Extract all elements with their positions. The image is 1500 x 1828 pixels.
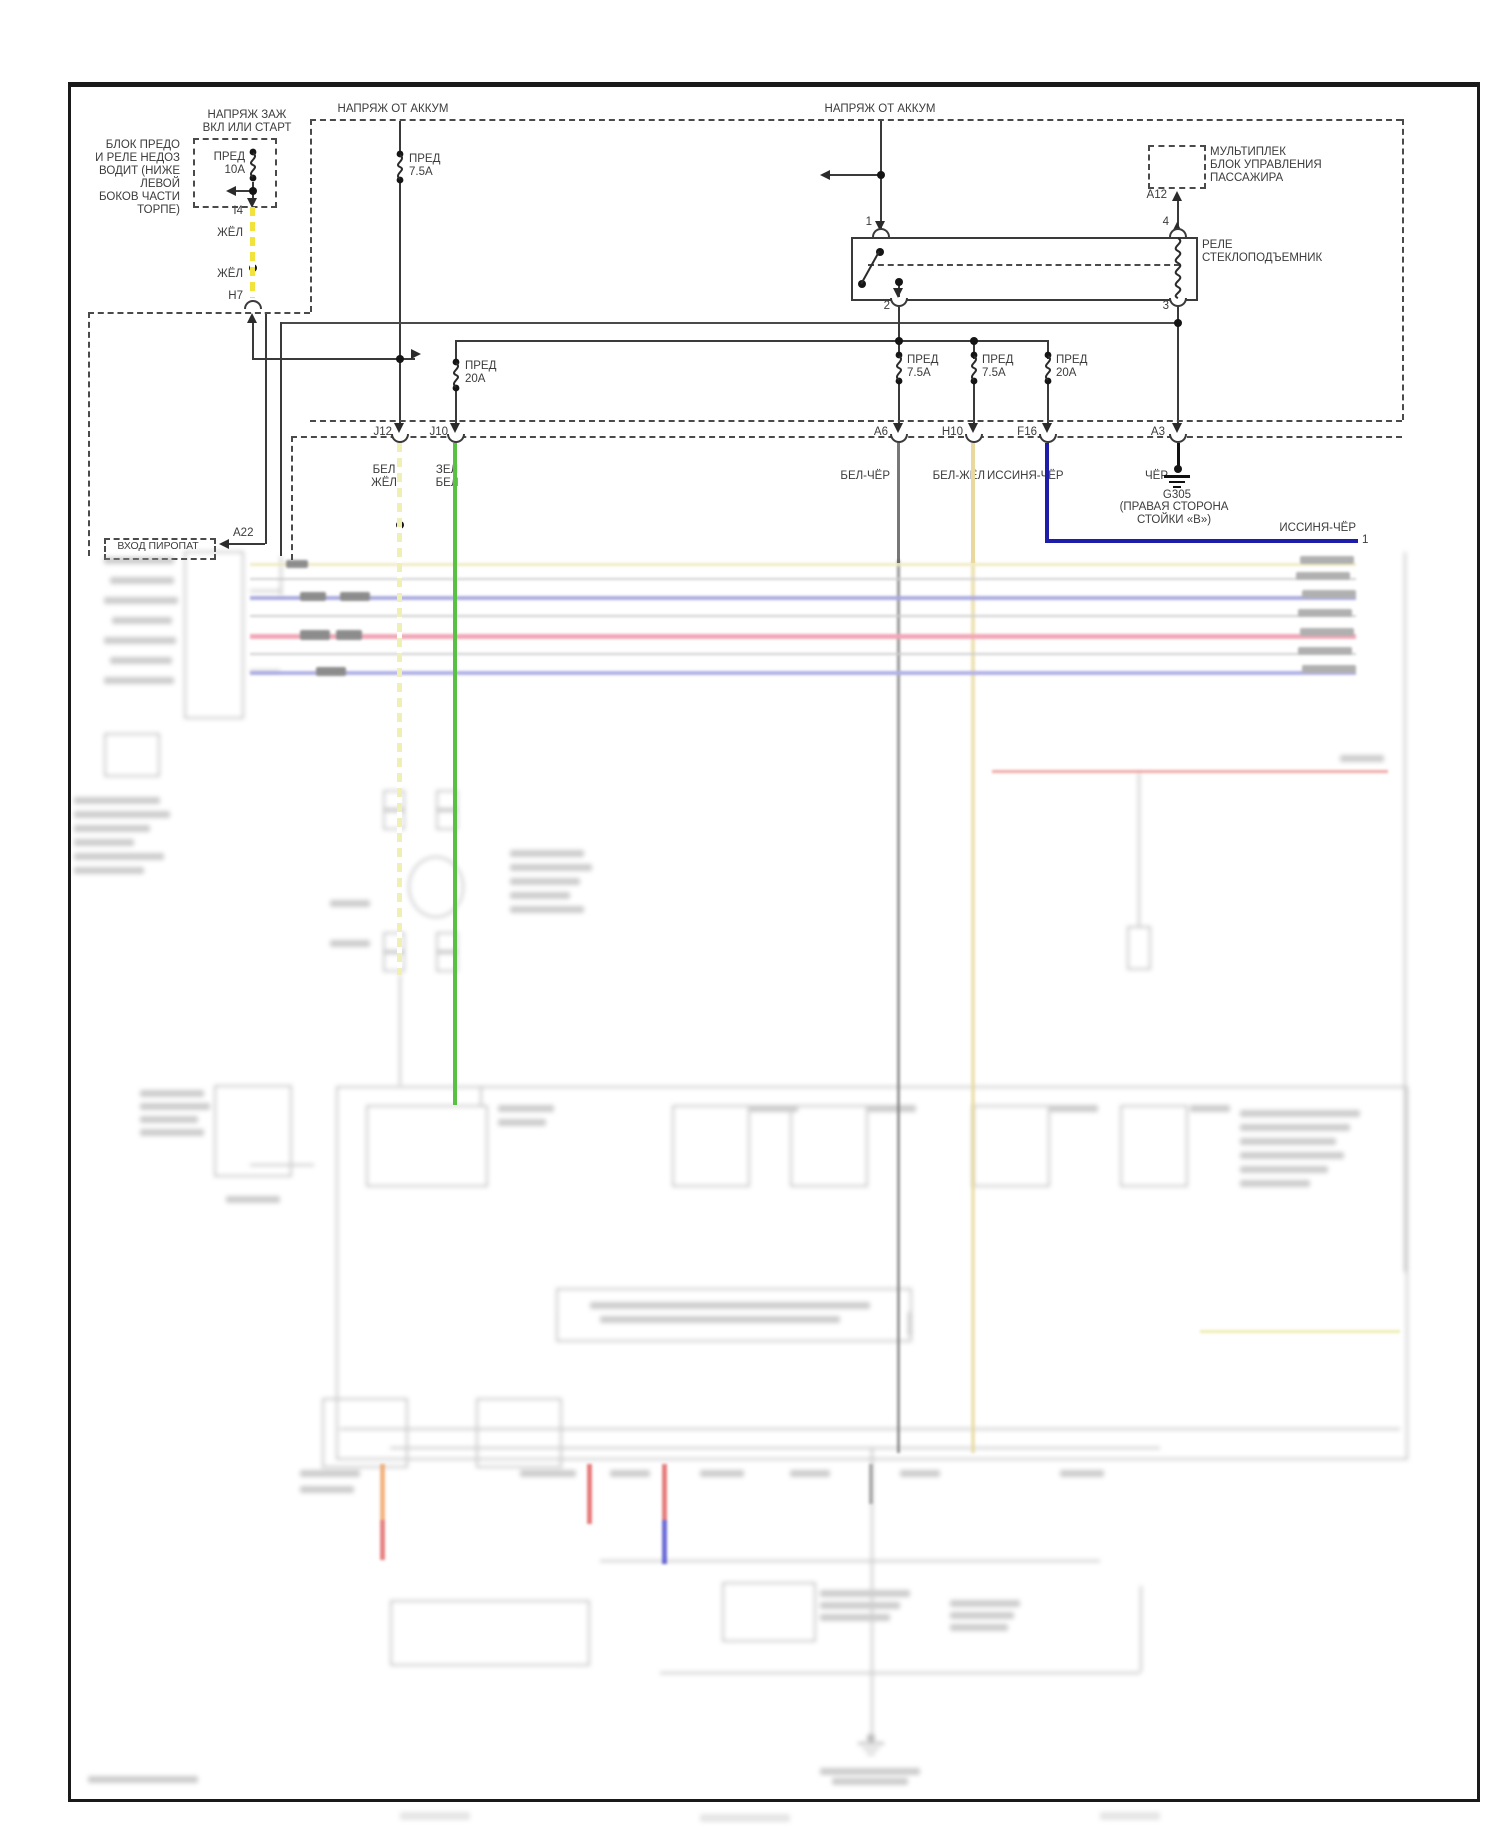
wire-line bbox=[280, 322, 282, 556]
junction-dot bbox=[895, 337, 903, 345]
wire-white-yellow-faded bbox=[971, 560, 975, 1453]
ghost-colored-wire bbox=[869, 1464, 873, 1504]
arrow-down-icon bbox=[1172, 423, 1182, 433]
wire-yellow-dashed bbox=[250, 207, 255, 298]
bus-line bbox=[250, 596, 1356, 600]
arrow-up-icon bbox=[247, 313, 257, 323]
fuse-symbol bbox=[1040, 351, 1056, 385]
ghost-colored-wire bbox=[662, 1464, 667, 1520]
dashed-boundary bbox=[291, 436, 293, 560]
ghost-colored-wire bbox=[662, 1520, 667, 1564]
bus-connector-blob bbox=[300, 630, 330, 640]
fuse-symbol bbox=[891, 351, 907, 385]
dashed-boundary bbox=[310, 420, 1402, 422]
wire-line bbox=[898, 302, 900, 357]
wire-line bbox=[280, 322, 1179, 324]
dashed-boundary bbox=[88, 312, 310, 314]
wire-green bbox=[453, 443, 457, 1105]
junction-dot bbox=[249, 187, 257, 195]
bus-end-label-blob bbox=[1300, 628, 1354, 636]
wire-gray-a6-faded bbox=[897, 560, 900, 1453]
bus-line bbox=[250, 671, 1356, 675]
wire-white-yellow bbox=[971, 443, 975, 563]
bus-line bbox=[250, 634, 1356, 639]
arrow-left-icon bbox=[219, 539, 229, 549]
ghost-yellow-line bbox=[1200, 1330, 1400, 1333]
dashed-boundary bbox=[310, 119, 1402, 121]
fuse-symbol bbox=[966, 351, 982, 385]
arrow-up-icon bbox=[1172, 191, 1182, 201]
wire-blue-horizontal bbox=[1045, 539, 1358, 543]
ghost-colored-wire bbox=[587, 1464, 592, 1524]
junction-dot bbox=[396, 355, 404, 363]
arrow-down-icon bbox=[394, 423, 404, 433]
fuse-symbol bbox=[392, 150, 408, 184]
bus-end-label-blob bbox=[1302, 665, 1356, 673]
fuse-symbol bbox=[245, 148, 261, 182]
bus-end-label-blob bbox=[1302, 590, 1356, 598]
bus-line bbox=[250, 653, 1356, 655]
ghost-colored-wire bbox=[380, 1520, 385, 1560]
junction-dot bbox=[970, 337, 978, 345]
ground-symbol-bar bbox=[1164, 475, 1190, 478]
fuse-symbol bbox=[448, 358, 464, 392]
junction-dot bbox=[877, 171, 885, 179]
junction-dot bbox=[895, 278, 903, 286]
ghost-colored-wire bbox=[380, 1464, 385, 1520]
ground-symbol-bar bbox=[1169, 481, 1185, 483]
wire-blue-vertical bbox=[1045, 443, 1049, 541]
arrow-down-icon bbox=[1042, 423, 1052, 433]
arrow-right-icon bbox=[411, 349, 421, 359]
junction-dot bbox=[1174, 465, 1182, 473]
blurred-bus-lines bbox=[0, 0, 1500, 1828]
bus-end-label-blob bbox=[1296, 572, 1350, 580]
arrow-left-icon bbox=[226, 186, 236, 196]
bus-connector-blob bbox=[300, 592, 326, 601]
bus-end-label-blob bbox=[1298, 609, 1352, 617]
wire-line bbox=[265, 312, 267, 544]
junction-dot bbox=[1174, 319, 1182, 327]
ground-symbol-bar bbox=[1173, 486, 1181, 488]
ghost-red-line bbox=[992, 770, 1388, 773]
wiring-diagram-page: НАПРЯЖ ЗАЖ ВКЛ ИЛИ СТАРТ БЛОК ПРЕДО И РЕ… bbox=[0, 0, 1500, 1828]
bus-line bbox=[250, 563, 1356, 566]
arrow-left-icon bbox=[820, 170, 830, 180]
wire-line bbox=[252, 358, 415, 360]
arrow-down-icon bbox=[450, 423, 460, 433]
wire-line bbox=[455, 340, 1049, 342]
bus-connector-blob bbox=[316, 667, 346, 676]
bus-end-label-blob bbox=[1298, 647, 1352, 655]
arrow-down-icon bbox=[893, 288, 903, 298]
wire-line bbox=[399, 121, 401, 152]
wire-gray-a6 bbox=[897, 443, 900, 563]
bus-connector-blob bbox=[336, 630, 362, 640]
bus-connector-blob bbox=[340, 592, 370, 601]
wire-line bbox=[822, 174, 880, 176]
relay-coil-symbol bbox=[1169, 238, 1187, 298]
dashed-boundary bbox=[310, 119, 312, 312]
bus-connector-blob bbox=[286, 560, 308, 568]
bus-line bbox=[250, 578, 1356, 580]
arrow-down-icon bbox=[893, 423, 903, 433]
wire-line bbox=[1177, 443, 1180, 466]
bus-end-label-blob bbox=[1300, 556, 1354, 564]
dashed-boundary bbox=[88, 312, 90, 556]
wire-line bbox=[252, 319, 254, 359]
wire-line bbox=[399, 182, 401, 426]
bus-line bbox=[250, 615, 1356, 617]
dashed-boundary bbox=[1402, 119, 1404, 420]
arrow-down-icon bbox=[968, 423, 978, 433]
wire-white-yellow-dashed bbox=[397, 443, 402, 975]
dashed-boundary bbox=[868, 264, 1180, 266]
